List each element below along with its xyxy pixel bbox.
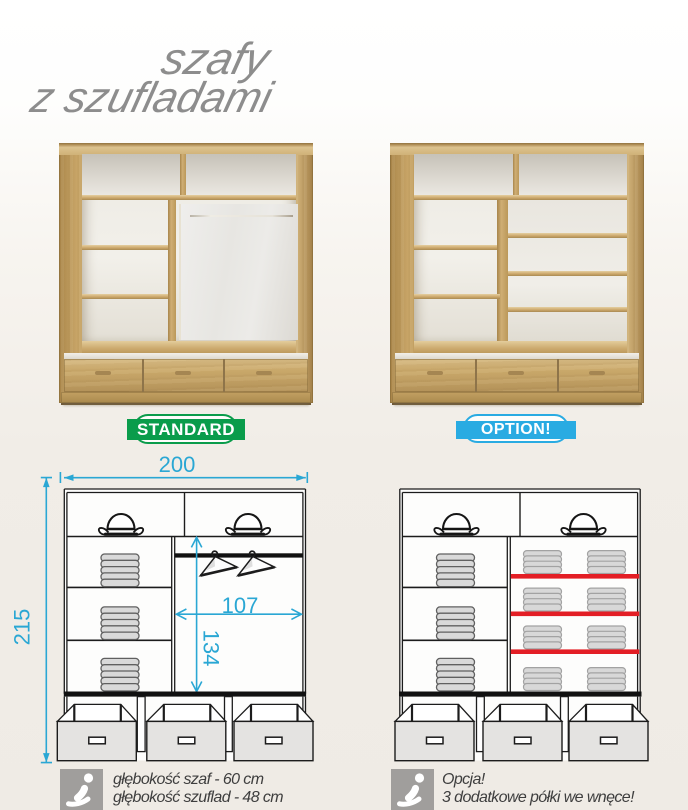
svg-text:215: 215 bbox=[10, 609, 35, 646]
svg-text:134: 134 bbox=[199, 630, 224, 667]
svg-text:200: 200 bbox=[159, 452, 196, 477]
svg-text:107: 107 bbox=[222, 593, 259, 618]
